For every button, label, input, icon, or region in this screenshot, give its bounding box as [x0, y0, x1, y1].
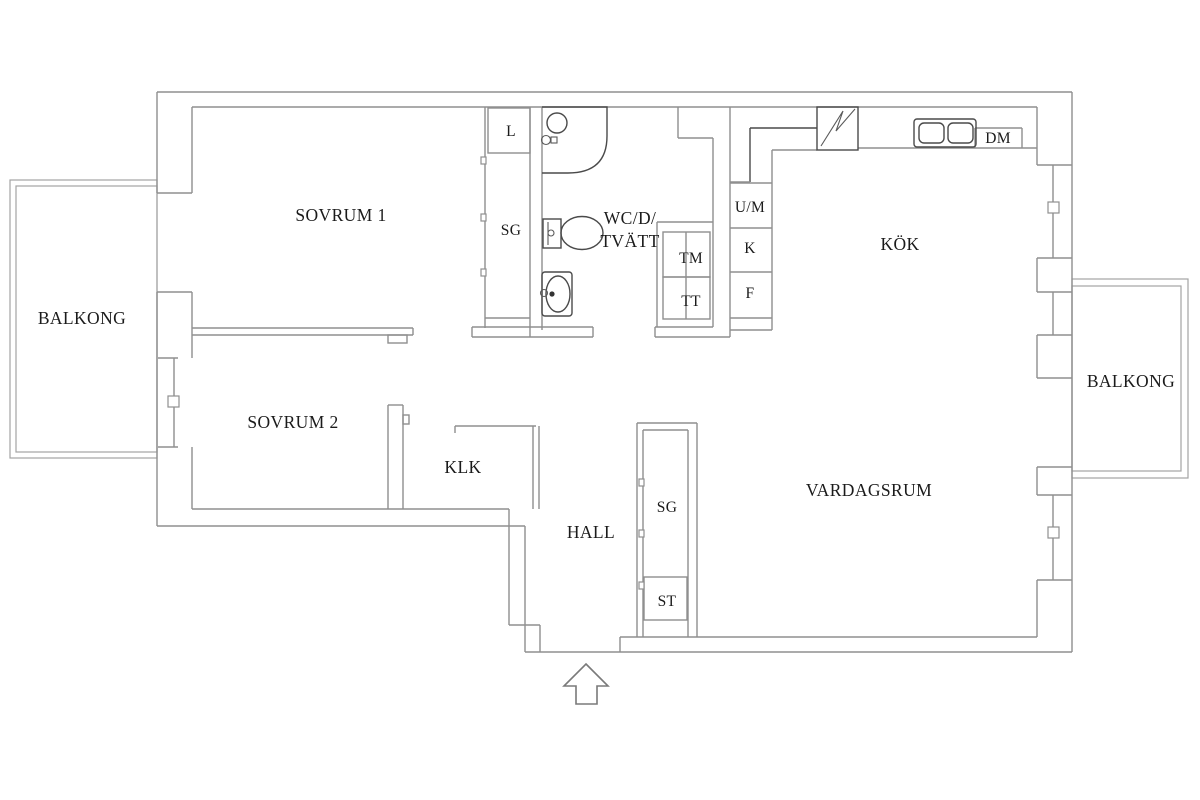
- entrance-arrow-icon: [564, 664, 608, 704]
- label-wc-line1: WC/D/: [604, 208, 657, 228]
- laundry-closets: [657, 222, 713, 327]
- window-sovrum2: [158, 358, 179, 447]
- label-um: U/M: [735, 199, 765, 216]
- exterior-walls: [157, 92, 1072, 652]
- label-sovrum1: SOVRUM 1: [295, 205, 386, 225]
- window-handle-icon: [1048, 527, 1059, 538]
- room-labels: BALKONG SOVRUM 1 L SG WC/D/ TVÄTT TM TT …: [38, 123, 1175, 610]
- label-k: K: [744, 240, 756, 257]
- kitchen-sink-icon: [914, 119, 976, 147]
- label-l-closet: L: [506, 123, 516, 140]
- toilet-icon: [543, 217, 603, 250]
- label-dm: DM: [985, 130, 1011, 147]
- bathroom-sink-icon: [541, 272, 573, 316]
- label-klk: KLK: [444, 457, 481, 477]
- label-sovrum2: SOVRUM 2: [247, 412, 338, 432]
- label-sg-hall: SG: [657, 499, 677, 516]
- label-hall: HALL: [567, 522, 615, 542]
- label-tt: TT: [681, 293, 701, 310]
- label-wc-line2: TVÄTT: [600, 231, 659, 251]
- label-balkong-left: BALKONG: [38, 308, 126, 328]
- window-handle-icon: [1048, 202, 1059, 213]
- window-kitchen: [1048, 165, 1059, 258]
- label-vardagsrum: VARDAGSRUM: [806, 480, 932, 500]
- label-tm: TM: [679, 250, 703, 267]
- label-balkong-right: BALKONG: [1087, 371, 1175, 391]
- stove-icon: [817, 107, 858, 150]
- interior-walls: [192, 107, 730, 509]
- window-handle-icon: [168, 396, 179, 407]
- label-kok: KÖK: [880, 234, 919, 254]
- label-st: ST: [658, 593, 677, 610]
- kitchen-cabinets: [730, 128, 1037, 330]
- shower-icon: [542, 107, 608, 173]
- window-vardagsrum: [1048, 495, 1059, 580]
- label-f: F: [746, 285, 755, 302]
- floorplan-canvas: BALKONG SOVRUM 1 L SG WC/D/ TVÄTT TM TT …: [0, 0, 1200, 800]
- label-sg-top: SG: [501, 222, 521, 239]
- floorplan-page: BALKONG SOVRUM 1 L SG WC/D/ TVÄTT TM TT …: [0, 0, 1200, 800]
